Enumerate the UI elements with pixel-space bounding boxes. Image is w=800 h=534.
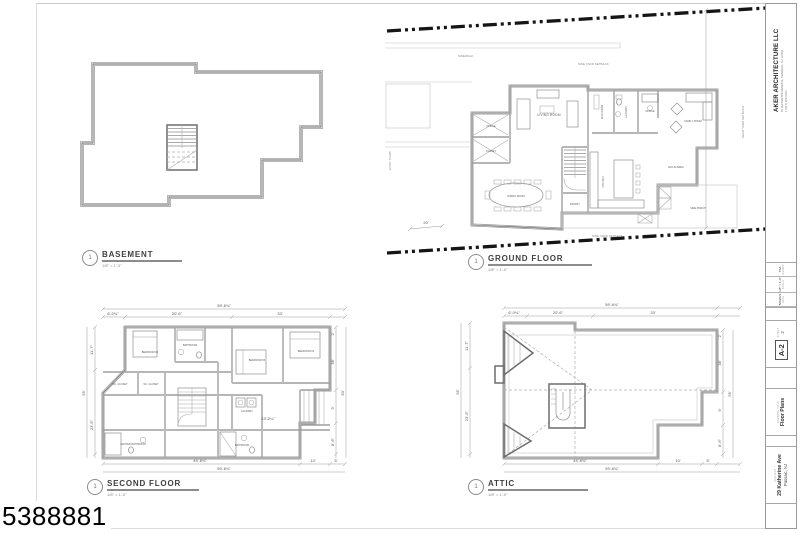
plan-number-badge: 1 — [87, 479, 103, 495]
field-drawn: TSA DRAWN — [766, 263, 796, 277]
dim-label: 23'-5" — [464, 410, 469, 421]
setback-top-label: SIDE YARD SETBACK — [578, 62, 609, 66]
attic-plan: 59'-6¾" 6'-0¾" 20'-6" 33' 11'-7" 55' 23'… — [450, 295, 750, 485]
field-scale: 1/8" = 1'-0" SCALE — [766, 277, 796, 293]
room-label: BATHROOM — [235, 444, 249, 447]
attic-stair — [549, 384, 585, 428]
dim-label: 8'-6" — [330, 437, 335, 446]
dim-label: 5' — [707, 458, 710, 463]
plan-title-text: BASEMENT — [102, 250, 182, 262]
ground-interior-walls — [472, 90, 658, 213]
sheet-number: A-2 — [775, 340, 788, 360]
drawing-sheet: SIDEWALK EXIST. CURB SIDE YARD SETBACK S… — [0, 0, 800, 533]
room-label: BEDROOM #1 — [298, 350, 315, 353]
dim-label: 2' — [330, 332, 335, 335]
dim-label: 10' — [310, 458, 315, 463]
dim-label: 20'-6" — [172, 311, 183, 316]
site-lines — [385, 8, 708, 231]
drawing-title-text: Floor Plans — [780, 398, 786, 426]
field-date: 5/8/2021 DATE — [766, 293, 796, 307]
attic-title: 1 ATTIC 1/8" = 1'-0" — [468, 479, 588, 497]
firm-phone: T (917) 254-5023 — [785, 90, 789, 112]
room-label: CLOSET — [486, 150, 496, 153]
room-label: SIDE PORCH — [690, 207, 706, 210]
second-walls — [103, 327, 330, 458]
ground-floor-title: 1 GROUND FLOOR 1/8" = 1'-0" — [468, 254, 592, 272]
room-label: BATHROOM — [183, 344, 197, 347]
plan-scale-text: 1/8" = 1'-0" — [102, 263, 182, 268]
sheet-number-cell: A-2 SHEET 2 — [766, 320, 796, 368]
plan-title-text: SECOND FLOOR — [107, 479, 199, 491]
attic-roof-lines — [504, 327, 717, 457]
dim-label: 6'-0¾" — [107, 311, 119, 316]
attic-dimensions: 59'-6¾" 6'-0¾" 20'-6" 33' 11'-7" 55' 23'… — [455, 302, 742, 472]
dim-label: 59'-6¾" — [605, 302, 619, 307]
dim-label: 50' — [340, 390, 345, 395]
dim-label: 38' — [717, 360, 722, 365]
attic-walls — [495, 323, 717, 458]
plan-number-badge: 1 — [468, 254, 484, 270]
dim-label: 9' — [330, 406, 335, 409]
title-block: PROJECT 29 Katherine Ave Passaic, NJ DRA… — [765, 3, 797, 529]
dim-label: 44'-6¾" — [573, 458, 587, 463]
title-block-inner: PROJECT 29 Katherine Ave Passaic, NJ DRA… — [766, 4, 796, 528]
dim-label: 59'-6¾" — [605, 466, 619, 471]
dim-label: 44'-6¾" — [193, 458, 207, 463]
second-interior-walls — [103, 327, 330, 458]
front-dim-label: 20' — [423, 220, 428, 225]
room-label: KITCHEN — [602, 176, 605, 187]
second-floor-plan: 59'-6¾" 6'-0¾" 20'-6" 33' 11'-7" 55' 23'… — [80, 300, 355, 485]
plan-scale-text: 1/8" = 1'-0" — [488, 492, 588, 497]
room-label: W.I. CLOSET — [143, 383, 158, 386]
dim-label: 38' — [330, 359, 335, 364]
dim-label: 13'-2¼" — [261, 416, 275, 421]
dim-label: 10' — [675, 458, 680, 463]
dim-label: 55' — [81, 390, 86, 395]
dim-label: 59'-6¾" — [217, 466, 231, 471]
room-label: PANTRY — [570, 203, 580, 206]
dim-label: 20'-6" — [553, 310, 564, 315]
room-label: BEDROOM #2 — [142, 351, 159, 354]
room-label: BEDROOM #3 — [249, 359, 266, 362]
room-label: EAT-IN AREA — [668, 166, 684, 169]
curb-label: EXIST. CURB — [388, 151, 392, 170]
property-lines — [387, 8, 766, 253]
plan-title-text: GROUND FLOOR — [488, 254, 592, 266]
plan-number-badge: 1 — [82, 250, 98, 266]
dim-label: 55' — [727, 391, 732, 396]
dim-label: 8'-6" — [717, 438, 722, 447]
room-label: LAUNDRY — [625, 106, 628, 118]
room-label: DINING ROOM — [507, 195, 524, 198]
ground-walls — [472, 86, 717, 229]
sidewalk-label: SIDEWALK — [458, 54, 473, 58]
listing-id-stamp: 5388881 — [2, 501, 111, 534]
room-label: OFFICE — [486, 125, 495, 128]
room-label: OFFICE — [645, 110, 654, 113]
drawing-title-cell: DRAWING TITLE Floor Plans — [766, 388, 796, 436]
dim-label: 5' — [335, 458, 338, 463]
plan-number-badge: 1 — [468, 479, 484, 495]
field-drawn-label: DRAWN — [782, 264, 785, 274]
plan-title-text: ATTIC — [488, 479, 588, 491]
dim-label: 33' — [650, 310, 655, 315]
room-label: LAUNDRY — [241, 410, 253, 413]
project-address-line2: Passaic, NJ — [783, 464, 788, 486]
room-label: LIVING ROOM — [537, 113, 561, 117]
setback-bottom-label: SIDE YARD SETBACK — [592, 234, 623, 238]
dim-label: 59'-6¾" — [217, 303, 231, 308]
dim-label: 23'-5" — [89, 419, 94, 430]
firm-block: AKER ARCHITECTURE LLC 65 JEFFERSON AVENU… — [766, 10, 796, 114]
dim-label: 6'-0¾" — [508, 310, 520, 315]
basement-walls — [82, 64, 321, 205]
plan-scale-text: 1/8" = 1'-0" — [107, 492, 199, 497]
room-label: W.I. CLOSET — [112, 383, 127, 386]
room-label: MUD ROOM — [601, 105, 604, 119]
field-date-label: DATE — [782, 296, 785, 303]
ground-stair — [564, 147, 586, 190]
basement-title: 1 BASEMENT 1/8" = 1'-0" — [82, 250, 182, 268]
sheet-seq: 2 — [780, 331, 785, 333]
site-labels: SIDEWALK EXIST. CURB SIDE YARD SETBACK S… — [388, 54, 745, 238]
basement-plan — [70, 45, 350, 220]
ground-room-labels: LIVING ROOM DINING ROOM KITCHEN PANTRY M… — [486, 105, 706, 210]
second-floor-title: 1 SECOND FLOOR 1/8" = 1'-0" — [87, 479, 199, 497]
project-address-cell: PROJECT 29 Katherine Ave Passaic, NJ — [766, 446, 796, 504]
dim-label: 11'-7" — [464, 340, 469, 350]
dim-label: 11'-7" — [89, 344, 94, 354]
dim-label: 9' — [717, 408, 722, 411]
setback-right-label: REAR YARD SETBACK — [741, 106, 745, 138]
basement-stair — [167, 125, 197, 170]
room-label: MASTER BATHROOM — [120, 443, 145, 446]
plan-scale-text: 1/8" = 1'-0" — [488, 267, 592, 272]
room-label: FAMILY ROOM — [684, 120, 701, 123]
dim-label: 33' — [277, 311, 282, 316]
ground-floor-plan: SIDEWALK EXIST. CURB SIDE YARD SETBACK S… — [385, 0, 770, 270]
field-scale-label: SCALE — [782, 280, 785, 289]
dim-label: 55' — [455, 389, 460, 394]
dim-label: 2' — [717, 334, 722, 337]
fields-table: 5/8/2021 DATE 1/8" = 1'-0" SCALE TSA DRA… — [766, 262, 796, 308]
